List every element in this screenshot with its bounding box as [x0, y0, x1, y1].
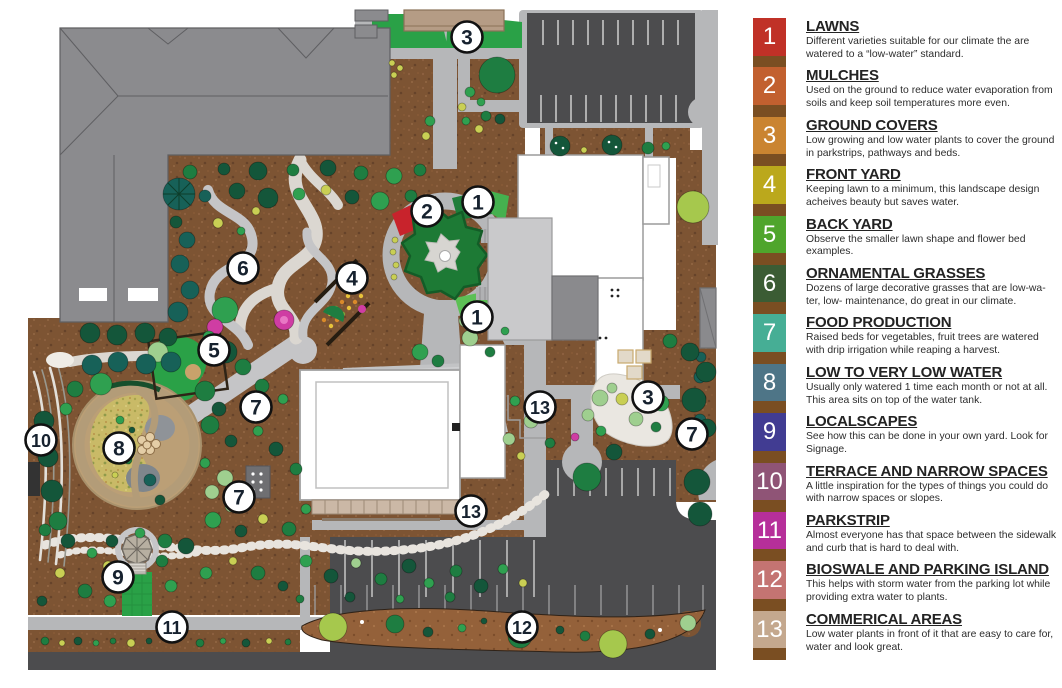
svg-text:4: 4 — [346, 268, 358, 291]
legend-separator — [753, 56, 786, 68]
legend-item-ground-covers: 3 GROUND COVERSLow growing and low water… — [753, 117, 1059, 166]
svg-text:2: 2 — [421, 201, 433, 224]
map-marker: 1 — [462, 302, 493, 333]
legend-number-swatch: 13 — [753, 611, 786, 649]
legend-separator — [753, 154, 786, 166]
legend-heading: PARKSTRIP — [806, 512, 1059, 529]
legend-number-swatch: 4 — [753, 166, 786, 204]
legend-description: Different varieties suitable for our cli… — [806, 36, 1059, 62]
legend-separator — [753, 648, 786, 660]
map-marker: 7 — [224, 482, 255, 513]
legend-description: Keeping lawn to a minimum, this landscap… — [806, 184, 1059, 210]
legend-number-swatch: 5 — [753, 216, 786, 254]
landscape-plan-page: 31246517108713371391112 1 LAWNSDifferent… — [0, 0, 1062, 688]
svg-text:10: 10 — [31, 431, 51, 451]
legend-heading: LOCALSCAPES — [806, 413, 1059, 430]
map-marker: 3 — [633, 382, 664, 413]
legend-heading: LAWNS — [806, 18, 1059, 35]
legend-item-commercial: 13 COMMERICAL AREASLow water plants in f… — [753, 611, 1059, 660]
svg-text:7: 7 — [250, 397, 262, 420]
map-marker: 4 — [337, 263, 368, 294]
legend-description: A little inspiration for the types of th… — [806, 481, 1059, 507]
legend-heading: COMMERICAL AREAS — [806, 611, 1059, 628]
legend-item-mulches: 2 MULCHESUsed on the ground to reduce wa… — [753, 67, 1059, 116]
legend-heading: ORNAMENTAL GRASSES — [806, 265, 1059, 282]
legend-heading: TERRACE AND NARROW SPACES — [806, 463, 1059, 480]
svg-text:3: 3 — [642, 387, 654, 410]
legend-description: Usually only watered 1 time each month o… — [806, 382, 1059, 408]
map-marker: 5 — [199, 335, 230, 366]
legend-heading: GROUND COVERS — [806, 117, 1059, 134]
legend-number-swatch: 10 — [753, 463, 786, 501]
legend-separator — [753, 253, 786, 265]
legend-heading: BACK YARD — [806, 216, 1059, 233]
svg-text:7: 7 — [686, 424, 698, 447]
svg-text:13: 13 — [530, 398, 550, 418]
legend-number-swatch: 2 — [753, 67, 786, 105]
legend-item-localscapes: 9 LOCALSCAPESSee how this can be done in… — [753, 413, 1059, 462]
legend-description: See how this can be done in your own yar… — [806, 431, 1059, 457]
legend-panel: 1 LAWNSDifferent varieties suitable for … — [753, 18, 1059, 660]
circular-garden — [73, 381, 201, 509]
svg-text:9: 9 — [112, 567, 124, 590]
legend-description: Low water plants in front of it that are… — [806, 629, 1059, 655]
map-marker: 1 — [463, 187, 494, 218]
svg-text:8: 8 — [113, 438, 125, 461]
legend-separator — [753, 352, 786, 364]
legend-number-swatch: 8 — [753, 364, 786, 402]
legend-item-back-yard: 5 BACK YARDObserve the smaller lawn shap… — [753, 216, 1059, 265]
legend-description: Used on the ground to reduce water evapo… — [806, 85, 1059, 111]
legend-item-parkstrip: 11 PARKSTRIPAlmost everyone has that spa… — [753, 512, 1059, 561]
legend-item-front-yard: 4 FRONT YARDKeeping lawn to a minimum, t… — [753, 166, 1059, 215]
map-marker: 12 — [507, 612, 538, 643]
legend-heading: BIOSWALE AND PARKING ISLAND — [806, 561, 1059, 578]
legend-separator — [753, 302, 786, 314]
svg-text:5: 5 — [208, 340, 220, 363]
legend-separator — [753, 599, 786, 611]
legend-heading: LOW TO VERY LOW WATER — [806, 364, 1059, 381]
map-marker: 2 — [412, 196, 443, 227]
map-ground-layer: 31246517108713371391112 — [25, 10, 718, 670]
legend-separator — [753, 401, 786, 413]
svg-text:13: 13 — [461, 502, 481, 522]
legend-description: This helps with storm water from the par… — [806, 579, 1059, 605]
svg-text:11: 11 — [162, 618, 181, 638]
site-plan-map: 31246517108713371391112 — [0, 0, 745, 688]
legend-item-bioswale: 12 BIOSWALE AND PARKING ISLANDThis helps… — [753, 561, 1059, 610]
legend-item-lawns: 1 LAWNSDifferent varieties suitable for … — [753, 18, 1059, 67]
map-marker: 13 — [456, 496, 487, 527]
legend-description: Observe the smaller lawn shape and flowe… — [806, 234, 1059, 260]
svg-text:7: 7 — [233, 487, 245, 510]
svg-text:1: 1 — [472, 192, 484, 215]
legend-description: Raised beds for vegetables, fruit trees … — [806, 332, 1059, 358]
map-marker: 11 — [157, 612, 188, 643]
map-marker: 6 — [228, 253, 259, 284]
map-marker: 7 — [241, 392, 272, 423]
map-marker: 9 — [103, 562, 134, 593]
svg-text:6: 6 — [237, 258, 249, 281]
legend-heading: MULCHES — [806, 67, 1059, 84]
legend-description: Dozens of large decorative grasses that … — [806, 283, 1059, 309]
legend-number-swatch: 6 — [753, 265, 786, 303]
map-marker: 10 — [26, 425, 57, 456]
legend-item-food-production: 7 FOOD PRODUCTIONRaised beds for vegetab… — [753, 314, 1059, 363]
legend-separator — [753, 549, 786, 561]
legend-item-low-water: 8 LOW TO VERY LOW WATERUsually only wate… — [753, 364, 1059, 413]
legend-separator — [753, 105, 786, 117]
legend-number-swatch: 12 — [753, 561, 786, 599]
legend-number-swatch: 7 — [753, 314, 786, 352]
map-marker: 3 — [452, 22, 483, 53]
map-marker: 13 — [525, 392, 556, 423]
legend-separator — [753, 451, 786, 463]
legend-item-ornamental-grasses: 6 ORNAMENTAL GRASSESDozens of large deco… — [753, 265, 1059, 314]
svg-text:1: 1 — [471, 307, 483, 330]
legend-number-swatch: 11 — [753, 512, 786, 550]
legend-description: Low growing and low water plants to cove… — [806, 135, 1059, 161]
map-marker: 8 — [104, 433, 135, 464]
legend-separator — [753, 500, 786, 512]
map-marker: 7 — [677, 419, 708, 450]
legend-number-swatch: 3 — [753, 117, 786, 155]
legend-heading: FOOD PRODUCTION — [806, 314, 1059, 331]
legend-number-swatch: 1 — [753, 18, 786, 56]
legend-number-swatch: 9 — [753, 413, 786, 451]
legend-description: Almost everyone has that space between t… — [806, 530, 1059, 556]
legend-heading: FRONT YARD — [806, 166, 1059, 183]
svg-text:12: 12 — [512, 618, 532, 638]
legend-item-terrace-narrow: 10 TERRACE AND NARROW SPACESA little ins… — [753, 463, 1059, 512]
legend-separator — [753, 204, 786, 216]
svg-text:3: 3 — [461, 27, 473, 50]
